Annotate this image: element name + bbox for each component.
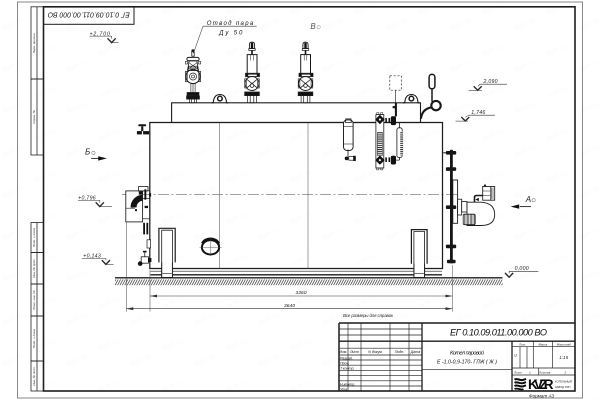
svg-text:В: В — [310, 22, 316, 31]
svg-text:Н.контр.: Н.контр. — [340, 382, 355, 386]
svg-text:Масса: Масса — [538, 342, 547, 346]
svg-text:Масштаб: Масштаб — [557, 342, 571, 346]
svg-text:3360: 3360 — [296, 290, 307, 296]
svg-text:КОТЕЛЬНЫЙ: КОТЕЛЬНЫЙ — [555, 380, 572, 384]
svg-text:2: 2 — [564, 371, 567, 375]
svg-text:Б: Б — [85, 148, 90, 157]
svg-text:Подп. и дата: Подп. и дата — [32, 329, 36, 349]
svg-text:Лит.: Лит. — [518, 342, 526, 346]
svg-text:Пров.: Пров. — [340, 362, 349, 366]
svg-text:1: 1 — [529, 371, 531, 375]
svg-text:1:15: 1:15 — [559, 355, 568, 360]
svg-text:Разраб.: Разраб. — [340, 356, 353, 360]
svg-text:ЗАВОД РЭП: ЗАВОД РЭП — [555, 385, 570, 389]
svg-text:+2,700: +2,700 — [89, 31, 110, 37]
svg-text:Лист: Лист — [349, 350, 359, 354]
svg-text:ЕГ 0.10.09.011.00.000 ВО: ЕГ 0.10.09.011.00.000 ВО — [47, 11, 130, 18]
svg-text:Утв.: Утв. — [340, 387, 348, 391]
svg-text:Листов: Листов — [538, 371, 551, 375]
svg-text:А: А — [525, 195, 531, 204]
svg-text:Все размеры для справок: Все размеры для справок — [343, 313, 394, 318]
svg-text:N докум.: N докум. — [368, 350, 383, 354]
svg-text:Инв. № дубл.: Инв. № дубл. — [32, 259, 36, 278]
svg-text:Перв. примен.: Перв. примен. — [32, 33, 36, 54]
svg-text:Дата: Дата — [410, 350, 420, 354]
svg-text:Лист: Лист — [513, 371, 522, 375]
svg-text:Котел паровой: Котел паровой — [450, 349, 484, 356]
svg-text:Справ. №: Справ. № — [32, 109, 36, 124]
svg-text:Т.контр.: Т.контр. — [340, 367, 355, 371]
svg-text:ЕГ 0.10.09.011.00.000 ВО: ЕГ 0.10.09.011.00.000 ВО — [450, 328, 547, 338]
svg-text:Подп.: Подп. — [395, 350, 405, 354]
svg-text:Формат А3: Формат А3 — [529, 394, 555, 399]
svg-text:Взам. инв. №: Взам. инв. № — [32, 290, 36, 310]
svg-text:KVZR: KVZR — [528, 377, 554, 392]
svg-text:3640: 3640 — [284, 303, 295, 309]
svg-text:Е -1,0-0,9-170- ГЛЖ ( Ж ): Е -1,0-0,9-170- ГЛЖ ( Ж ) — [437, 360, 497, 366]
svg-text:Подп. и дата: Подп. и дата — [32, 228, 36, 248]
svg-text:Инв. № подл.: Инв. № подл. — [32, 366, 36, 385]
svg-text:Изм.: Изм. — [340, 350, 348, 354]
svg-text:Ду 50: Ду 50 — [218, 31, 243, 37]
